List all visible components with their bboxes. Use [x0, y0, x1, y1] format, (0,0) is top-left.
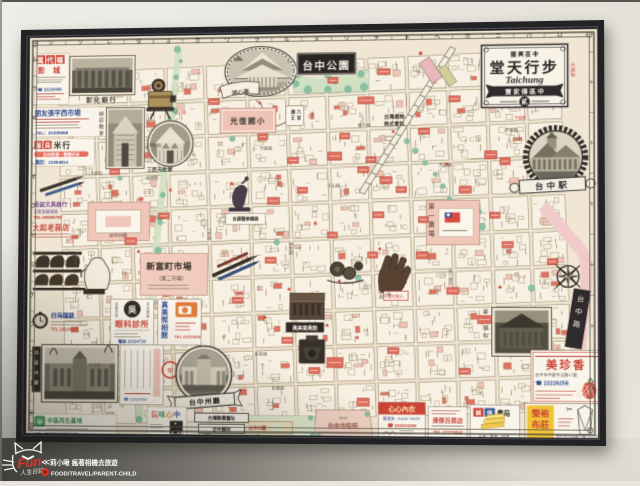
- svg-text:≪: ≪: [41, 457, 50, 467]
- svg-text:FOOD/TRAVEL/PARENT-CHILD: FOOD/TRAVEL/PARENT-CHILD: [51, 472, 136, 478]
- svg-text:莉小啾 瘋著相機去旅遊: 莉小啾 瘋著相機去旅遊: [50, 458, 118, 467]
